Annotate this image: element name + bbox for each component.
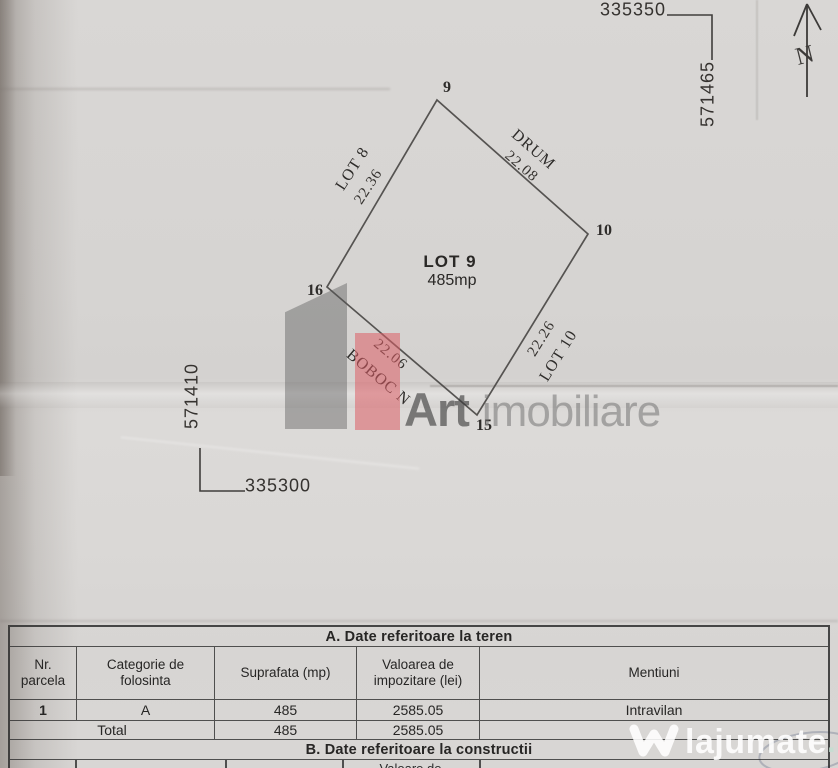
- lajumate-watermark: lajumate .ro: [629, 722, 838, 762]
- vertex-label-9: 9: [443, 79, 451, 97]
- art-imobiliare-watermark: Art imobiliare: [404, 386, 660, 434]
- total-valoarea: 2585.05: [357, 721, 480, 739]
- total-label: Total: [10, 721, 215, 739]
- column-header-valoarea: Valoarea de impozitare (lei): [357, 647, 480, 699]
- cell-valoarea: 2585.05: [357, 700, 480, 720]
- cell-categorie: A: [77, 700, 215, 720]
- grid-coordinate-y-left: 571410: [182, 363, 203, 429]
- column-header-mentiuni: Mentiuni: [480, 647, 828, 699]
- partial-column-header: Valoare de: [342, 761, 479, 768]
- art-imobiliare-word1: Art: [404, 386, 469, 433]
- lajumate-name: lajumate: [685, 723, 827, 762]
- table-divider: [479, 760, 481, 768]
- lajumate-tld: .ro: [827, 724, 838, 760]
- table-header-row: Nr. parcela Categorie de folosinta Supra…: [10, 647, 828, 700]
- cell-mentiuni: Intravilan: [480, 700, 828, 720]
- lajumate-logo-icon: [629, 722, 679, 762]
- table-divider: [75, 760, 77, 768]
- grid-coordinate-x-top: 335350: [600, 0, 666, 21]
- grid-coordinate-x-left: 335300: [245, 476, 311, 497]
- scanned-cadastral-document: 335350 571465 571410 335300 N 9 10 15 16…: [0, 0, 838, 768]
- table-row: 1 A 485 2585.05 Intravilan: [10, 700, 828, 721]
- vertex-label-10: 10: [596, 222, 612, 240]
- total-suprafata: 485: [215, 721, 357, 739]
- table-divider: [225, 760, 227, 768]
- column-header-suprafata: Suprafata (mp): [215, 647, 357, 699]
- grid-tick-left: [200, 448, 245, 491]
- art-imobiliare-logo-accent: [355, 333, 400, 430]
- section-a-title: A. Date referitoare la teren: [10, 627, 828, 647]
- art-imobiliare-word2: imobiliare: [482, 390, 660, 434]
- lot-area: 485mp: [428, 272, 477, 290]
- lot-name: LOT 9: [423, 252, 476, 272]
- grid-tick-top: [667, 15, 712, 60]
- column-header-categorie: Categorie de folosinta: [77, 647, 215, 699]
- column-header-nr-parcela: Nr. parcela: [10, 647, 77, 699]
- cell-suprafata: 485: [215, 700, 357, 720]
- grid-coordinate-y-top: 571465: [698, 61, 719, 127]
- cell-nr-parcela: 1: [10, 700, 77, 720]
